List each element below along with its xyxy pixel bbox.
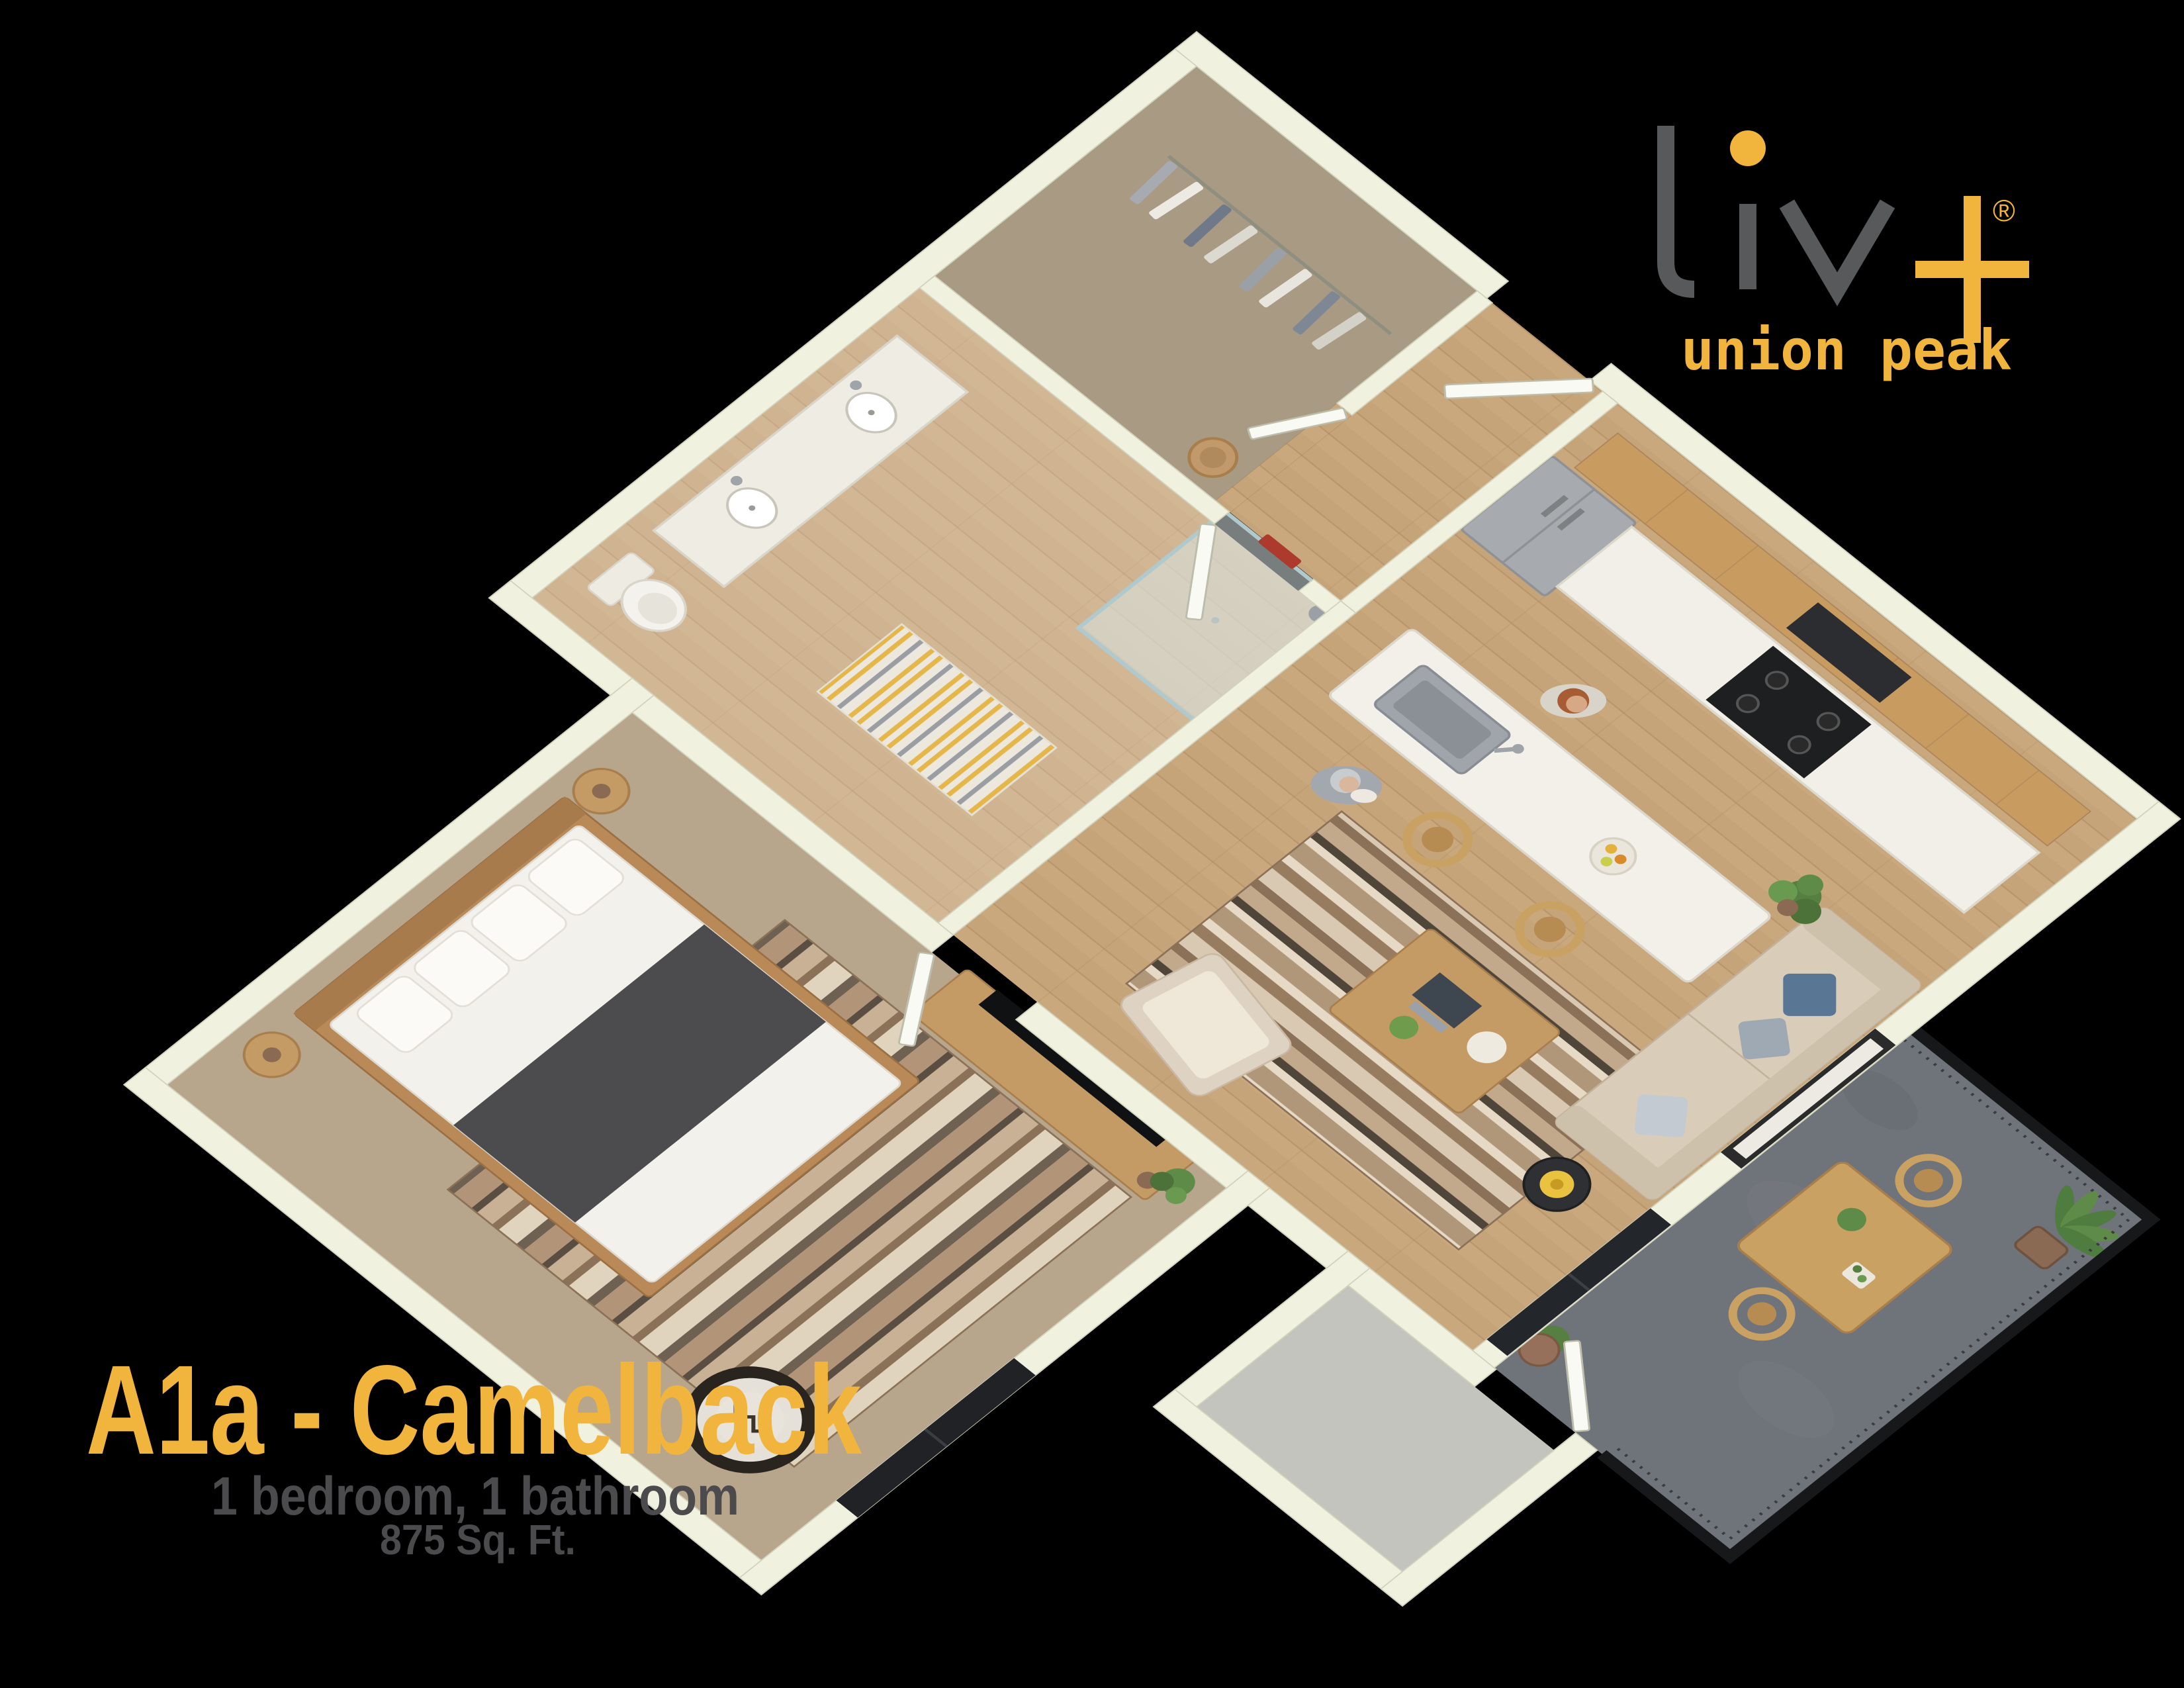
registered-mark: ®: [1993, 193, 2015, 228]
logo-i-dot: [1730, 130, 1766, 166]
person-figure-kitchen: [1540, 684, 1606, 718]
floor-plan-poster: ® union peak A1a - Camelback 1 bedroom, …: [0, 0, 2184, 1688]
logo-liv-plus: ® union peak: [1666, 126, 2029, 383]
floor-plan-area: 875 Sq. Ft.: [380, 1516, 576, 1564]
logo-letter-l: [1666, 126, 1694, 289]
community-name: union peak: [1681, 318, 2012, 383]
logo-letter-v: [1787, 204, 1888, 289]
floor-plan-name: A1a - Camelback: [86, 1338, 862, 1481]
floor-plan-illustration: ® union peak A1a - Camelback 1 bedroom, …: [0, 0, 2184, 1688]
